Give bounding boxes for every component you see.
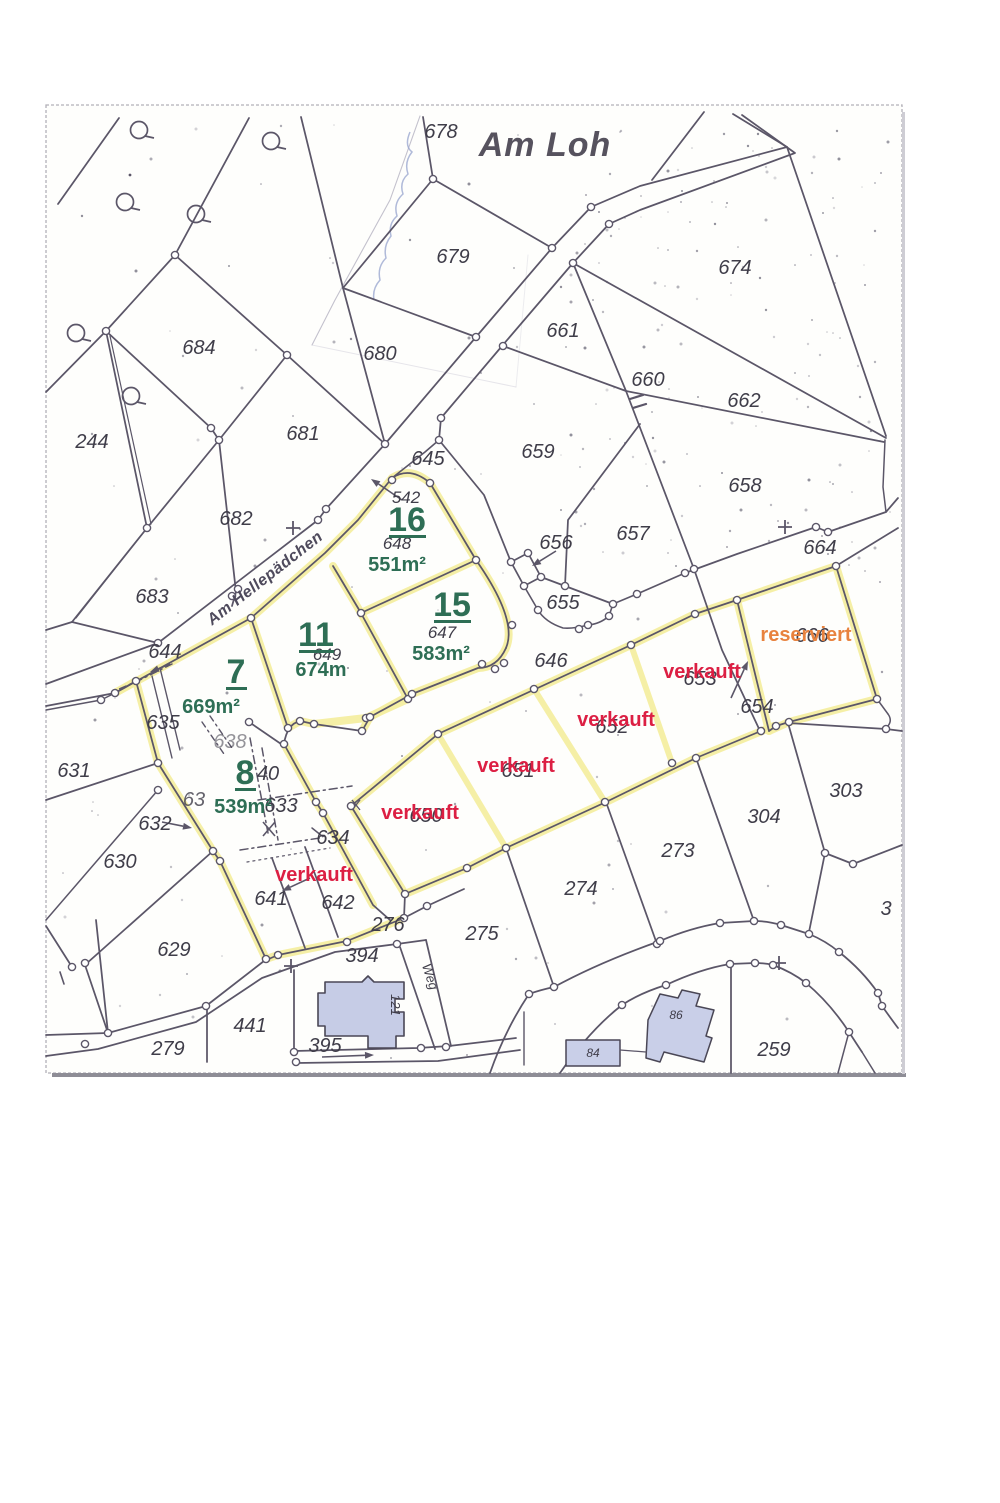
svg-text:verkauft: verkauft xyxy=(275,864,353,886)
svg-text:394: 394 xyxy=(345,945,378,967)
svg-text:441: 441 xyxy=(233,1015,266,1037)
svg-text:63: 63 xyxy=(183,789,205,811)
svg-text:684: 684 xyxy=(182,337,215,359)
svg-text:642: 642 xyxy=(321,892,354,914)
svg-text:84: 84 xyxy=(586,1046,600,1060)
svg-text:verkauft: verkauft xyxy=(663,661,741,683)
svg-text:244: 244 xyxy=(74,431,108,453)
svg-text:644: 644 xyxy=(148,641,181,663)
svg-text:674m: 674m xyxy=(295,659,346,681)
svg-text:583m²: 583m² xyxy=(412,643,470,665)
svg-text:669m²: 669m² xyxy=(182,696,240,718)
svg-text:551m²: 551m² xyxy=(368,554,426,576)
svg-text:678: 678 xyxy=(424,121,457,143)
svg-text:273: 273 xyxy=(660,840,694,862)
svg-text:15: 15 xyxy=(433,586,471,624)
svg-text:656: 656 xyxy=(539,532,573,554)
svg-text:645: 645 xyxy=(411,448,445,470)
svg-text:647: 647 xyxy=(428,623,457,642)
svg-text:16: 16 xyxy=(388,501,426,539)
svg-text:303: 303 xyxy=(829,780,862,802)
svg-text:632: 632 xyxy=(138,813,171,835)
svg-text:638: 638 xyxy=(213,731,246,753)
svg-text:680: 680 xyxy=(363,343,396,365)
svg-text:verkauft: verkauft xyxy=(381,802,459,824)
svg-text:395: 395 xyxy=(308,1035,342,1057)
svg-text:646: 646 xyxy=(534,650,568,672)
svg-text:3: 3 xyxy=(880,898,891,920)
svg-text:681: 681 xyxy=(286,423,319,445)
svg-text:630: 630 xyxy=(103,851,136,873)
svg-text:539m²: 539m² xyxy=(214,796,272,818)
svg-text:682: 682 xyxy=(219,508,252,530)
svg-text:661: 661 xyxy=(546,320,579,342)
svg-text:641: 641 xyxy=(254,888,287,910)
svg-text:86: 86 xyxy=(669,1008,683,1022)
svg-text:reserviert: reserviert xyxy=(760,624,852,646)
svg-text:631: 631 xyxy=(57,760,90,782)
svg-text:121: 121 xyxy=(388,994,403,1016)
svg-text:275: 275 xyxy=(464,923,499,945)
svg-text:629: 629 xyxy=(157,939,190,961)
svg-text:655: 655 xyxy=(546,592,580,614)
svg-text:276: 276 xyxy=(370,914,405,936)
svg-text:40: 40 xyxy=(257,763,279,785)
svg-text:verkauft: verkauft xyxy=(577,709,655,731)
svg-text:683: 683 xyxy=(135,586,168,608)
svg-text:679: 679 xyxy=(436,246,469,268)
svg-text:verkauft: verkauft xyxy=(477,755,555,777)
svg-text:657: 657 xyxy=(616,523,650,545)
svg-text:664: 664 xyxy=(803,537,836,559)
svg-text:662: 662 xyxy=(727,390,760,412)
svg-text:660: 660 xyxy=(631,369,664,391)
svg-text:659: 659 xyxy=(521,441,554,463)
svg-text:634: 634 xyxy=(316,827,349,849)
svg-text:279: 279 xyxy=(150,1038,184,1060)
svg-text:11: 11 xyxy=(298,616,334,654)
svg-text:658: 658 xyxy=(728,475,761,497)
svg-text:274: 274 xyxy=(563,878,597,900)
svg-text:7: 7 xyxy=(227,653,246,691)
svg-text:304: 304 xyxy=(747,806,780,828)
svg-text:8: 8 xyxy=(236,754,255,792)
svg-text:635: 635 xyxy=(146,712,180,734)
svg-text:674: 674 xyxy=(718,257,751,279)
svg-text:654: 654 xyxy=(740,696,773,718)
svg-text:Am Loh: Am Loh xyxy=(478,126,612,164)
svg-text:259: 259 xyxy=(756,1039,790,1061)
